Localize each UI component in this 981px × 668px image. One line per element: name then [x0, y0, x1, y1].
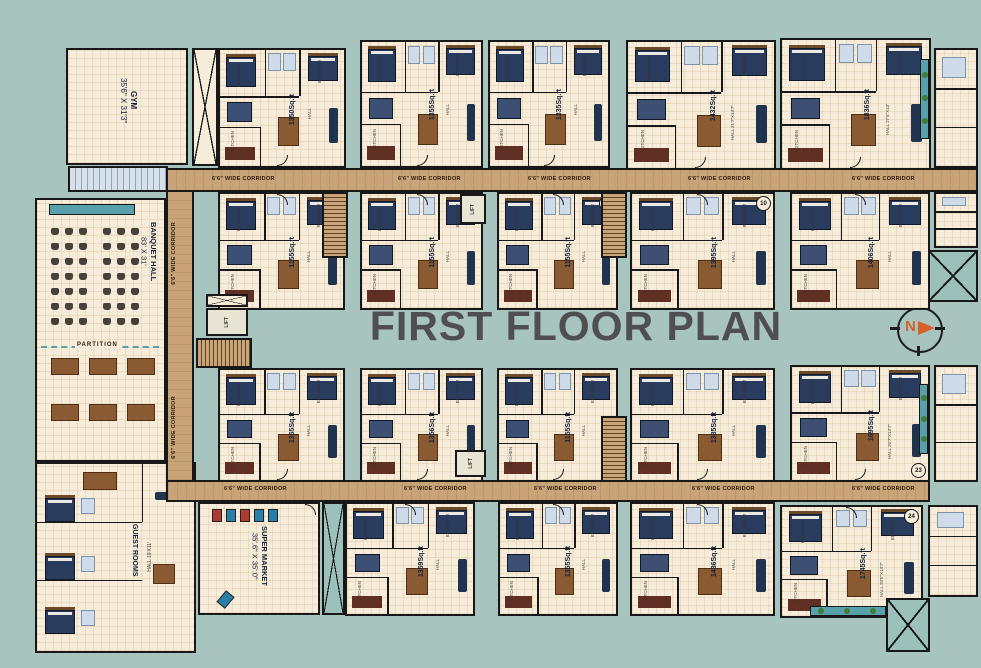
bed-headboard [639, 374, 673, 377]
corridor-label: 6'6" WIDE CORRIDOR [171, 222, 177, 285]
gym-name: GYM [129, 91, 138, 109]
bed-pillow [638, 52, 667, 55]
bed-headboard [446, 373, 475, 376]
toilet-icon [550, 46, 562, 65]
interior-wall [438, 194, 439, 240]
interior-wall [400, 443, 401, 480]
door-arc-icon [277, 155, 288, 166]
chair-icon [103, 228, 111, 235]
toilet-icon [844, 370, 858, 387]
room-label-bedroom: BEDROOM [897, 52, 902, 75]
plant-icon [870, 608, 876, 614]
bed-headboard [226, 54, 256, 57]
bed-headboard [505, 198, 533, 201]
bed-headboard [635, 47, 670, 50]
door-arc-icon [855, 469, 866, 480]
room-label-bedroom: BEDROOM [236, 64, 241, 87]
sofa-icon [756, 559, 766, 592]
sofa-icon [912, 251, 922, 285]
interior-wall [632, 443, 677, 444]
bed-pillow [229, 59, 253, 62]
chair-icon [65, 318, 73, 325]
door-arc-icon [855, 194, 866, 205]
guest-rooms-name: GUEST ROOMS [131, 524, 138, 577]
interior-wall [681, 42, 682, 92]
toilet-icon [283, 53, 296, 70]
chair-icon [51, 228, 59, 235]
room-label-kitchen: KITCHEN [508, 447, 513, 467]
room-label-kitchen: KITCHEN [643, 581, 648, 601]
interior-wall [264, 370, 265, 414]
interior-wall [528, 124, 529, 166]
bed-headboard [368, 198, 397, 201]
partition-label: PARTITION [75, 342, 120, 348]
room-label-bedroom: BEDROOM [650, 383, 655, 406]
room-label-bedroom: BEDROOM [742, 380, 747, 403]
bed-pillow [892, 375, 919, 378]
shaft-x-icon [192, 48, 218, 166]
interior-wall [220, 414, 299, 415]
room-label-bedroom: BEDROOM [810, 208, 815, 231]
room-label-bedroom: BEDROOM [590, 380, 595, 403]
toilet-icon [81, 498, 95, 514]
interior-wall [930, 565, 976, 566]
room-label-hall: HALL [731, 425, 736, 436]
supermarket: SUPER MARKET 35'.6" X 35'.0" [198, 502, 320, 615]
corridor-label: 6'6" WIDE CORRIDOR [534, 486, 597, 492]
room-label-hall: HALL [887, 251, 892, 262]
bed-pillow [48, 500, 72, 503]
room-label-kitchen: KITCHEN [793, 583, 798, 603]
banquet-hall: BANQUET HALL 83' X 31' PARTITION [35, 198, 166, 462]
dining-table-icon [89, 404, 117, 421]
toilet-icon [704, 373, 719, 390]
interior-wall [871, 507, 872, 551]
door-arc-icon [697, 504, 708, 515]
room-label-kitchen: KITCHEN [640, 130, 645, 150]
bed-icon [732, 376, 766, 400]
interior-wall [936, 211, 976, 212]
room-label-hall: HALL [306, 251, 311, 262]
bed-headboard [889, 197, 922, 200]
right-wing-strip [934, 365, 978, 482]
toilet-icon [544, 373, 556, 390]
bed-pillow [229, 203, 253, 206]
open-shaft-x-icon [322, 502, 345, 615]
bed-pillow [371, 203, 394, 206]
interior-wall [265, 50, 266, 96]
sofa-icon [756, 251, 766, 285]
cart-icon [240, 509, 250, 522]
unit-area-label: 1155Sq.ft [289, 237, 296, 268]
door-arc-icon [850, 157, 861, 168]
bed-headboard [582, 373, 610, 376]
floor-plan: FIRST FLOOR PLAN GYM 35'6" X 31'3" BANQU… [0, 0, 981, 668]
room-label-bedroom: BEDROOM [800, 520, 805, 543]
bed-headboard [368, 374, 397, 377]
bed-pillow [802, 376, 829, 379]
interior-wall [566, 42, 567, 92]
unit-number-badge: 24 [904, 509, 919, 524]
right-wing-strip [928, 505, 978, 597]
bed-pillow [642, 513, 670, 516]
chair-icon [117, 303, 125, 310]
interior-wall [259, 443, 260, 480]
cart-icon [268, 509, 278, 522]
gym-dims: 35'6" X 31'3" [119, 78, 128, 123]
bed-pillow [802, 203, 829, 206]
interior-wall [936, 88, 976, 89]
toilet-icon [937, 512, 965, 528]
chair-icon [65, 243, 73, 250]
room-label-bedroom: BEDROOM [236, 383, 241, 406]
room-label-bedroom: BEDROOM [455, 53, 460, 76]
room-label-kitchen: KITCHEN [230, 447, 235, 467]
unit-area-label: 1436Sq.ft [711, 546, 718, 577]
bed-pillow [310, 378, 334, 381]
cart-icon [254, 509, 264, 522]
chair-icon [65, 228, 73, 235]
interior-wall [792, 269, 836, 270]
chair-icon [131, 273, 139, 280]
cart-icon [226, 509, 236, 522]
room-label-hall: HALL [573, 104, 578, 115]
chair-icon [103, 258, 111, 265]
chair-icon [103, 318, 111, 325]
room-label-hall: HALL [581, 425, 586, 436]
dining-table-icon [51, 358, 79, 375]
interior-wall [632, 240, 722, 241]
bed-pillow [311, 58, 335, 61]
chair-icon [131, 243, 139, 250]
interior-wall [490, 92, 566, 93]
interior-wall [632, 269, 677, 270]
dining-table-icon [83, 472, 117, 490]
toilet-icon [861, 370, 875, 387]
sofa-icon [602, 559, 610, 592]
bed-headboard [307, 373, 337, 376]
room-label-hall: HALL 20'5"X13'7" [879, 562, 884, 597]
interior-wall [299, 370, 300, 414]
bed-icon [732, 48, 767, 76]
chair-icon [117, 318, 125, 325]
bed-icon [789, 514, 822, 542]
right-wing-strip [934, 48, 978, 168]
banquet-label: BANQUET HALL 83' X 31' [139, 222, 158, 281]
room-label-bedroom: BEDROOM [742, 53, 747, 76]
chair-icon [131, 228, 139, 235]
room-label-bedroom: BEDROOM [377, 57, 382, 80]
bed-icon [639, 201, 673, 231]
corridor-label: 6'6" WIDE CORRIDOR [398, 176, 461, 182]
unit-area-label: 1335Sq.ft [556, 89, 563, 120]
apartment-unit: 1406Sq.ftBEDROOMBEDROOMHALLKITCHEN [790, 192, 930, 310]
toilet-icon [81, 610, 95, 626]
bed-pillow [735, 50, 764, 53]
bed-headboard [799, 371, 832, 374]
room-label-kitchen: KITCHEN [357, 581, 362, 601]
bed-pillow [892, 202, 919, 205]
room-label-kitchen: KITCHEN [230, 274, 235, 294]
bed-pillow [508, 379, 530, 382]
interior-wall [299, 194, 300, 240]
room-label-kitchen: KITCHEN [230, 131, 235, 151]
sofa-icon [756, 425, 766, 458]
unit-number-badge: 10 [756, 196, 771, 211]
room-label-bedroom: BEDROOM [514, 208, 519, 231]
chair-icon [65, 273, 73, 280]
room-label-hall: HALL [445, 104, 450, 115]
room-label-kitchen: KITCHEN [372, 447, 377, 467]
bed-headboard [226, 198, 256, 201]
gym-room: GYM 35'6" X 31'3" [66, 48, 188, 165]
room-label-bedroom: BEDROOM [316, 380, 321, 403]
interior-wall [400, 269, 401, 308]
interior-wall [220, 127, 260, 128]
unit-area-label: 1355Sq.ft [565, 546, 572, 577]
interior-wall [574, 194, 575, 240]
interior-wall [930, 536, 976, 537]
chair-icon [117, 288, 125, 295]
room-label-hall: HALL 27'5"X13' [885, 104, 890, 135]
bed-icon [355, 554, 380, 573]
bed-icon [45, 498, 75, 522]
interior-wall [574, 370, 575, 414]
bed-headboard [789, 511, 822, 514]
bed-headboard [732, 373, 766, 376]
sofa-icon [756, 105, 766, 143]
room-label-bedroom: BEDROOM [455, 380, 460, 403]
interior-wall [936, 228, 976, 229]
bed-icon [227, 102, 252, 122]
bed-headboard [582, 507, 610, 510]
room-label-hall: HALL [445, 251, 450, 262]
interior-wall [400, 124, 401, 166]
room-label-bedroom: BEDROOM [514, 383, 519, 406]
balcony [810, 606, 886, 616]
bed-headboard [506, 508, 534, 511]
room-label-bedroom: BEDROOM [647, 57, 652, 80]
interior-wall [628, 92, 721, 93]
bed-icon [639, 511, 673, 540]
interior-wall [428, 504, 429, 548]
kitchen-counter-icon [634, 148, 669, 162]
bed-icon [506, 245, 529, 264]
apartment-unit: 1155Sq.ftBEDROOMBEDROOMHALLKITCHEN09 [497, 192, 618, 310]
staircase-icon [196, 338, 252, 368]
interior-wall [438, 42, 439, 92]
toilet-icon [81, 556, 95, 572]
interior-wall [722, 504, 723, 548]
apartment-unit: 1395Sq.ftBEDROOMBEDROOMHALLKITCHEN10 [630, 192, 775, 310]
room-label-bedroom: BEDROOM [236, 208, 241, 231]
interior-wall [541, 370, 542, 414]
bed-icon [640, 245, 668, 264]
lift-label: LIFT [470, 204, 476, 215]
apartment-unit: 1155Sq.ftBEDROOMBEDROOMHALLKITCHEN [497, 368, 618, 482]
interior-wall [683, 370, 684, 414]
bed-pillow [792, 50, 821, 53]
room-label-hall: HALL [581, 559, 586, 570]
apartment-unit: 1836Sq.ftBEDROOMBEDROOMHALL 27'5"X13'KIT… [780, 38, 931, 170]
dining-table-icon [127, 404, 155, 421]
shaft-x-icon [206, 294, 248, 307]
door-arc-icon [277, 469, 288, 480]
bed-icon [635, 50, 670, 83]
apartment-unit: 1385Sq.ftBEDROOMBEDROOMHALLKITCHEN [630, 368, 775, 482]
room-label-bedroom: BEDROOM [742, 204, 747, 227]
dining-table-icon [51, 404, 79, 421]
bed-icon [496, 49, 524, 81]
interior-wall [299, 50, 300, 96]
door-arc-icon [697, 469, 708, 480]
toilet-icon [686, 373, 701, 390]
interior-wall [782, 124, 829, 125]
room-label-bedroom: BEDROOM [515, 517, 520, 540]
unit-area-label: 1355Sq.ft [429, 89, 436, 120]
room-label-bedroom: BEDROOM [377, 208, 382, 231]
bed-icon [45, 610, 75, 634]
room-label-hall: HALL [731, 251, 736, 262]
unit-area-label: 1432Sq.ft [710, 90, 717, 121]
interior-wall [220, 443, 259, 444]
chair-icon [65, 258, 73, 265]
room-label-bedroom: BEDROOM [898, 204, 903, 227]
bed-icon [369, 420, 393, 439]
interior-wall [259, 269, 260, 308]
room-label-bedroom: BEDROOM [650, 517, 655, 540]
chair-icon [51, 288, 59, 295]
open-shaft-x-icon [928, 250, 978, 302]
toilet-icon [423, 373, 435, 390]
plant-icon [922, 95, 928, 101]
room-label-kitchen: KITCHEN [643, 274, 648, 294]
apartment-unit: 1335Sq.ftBEDROOMBEDROOMHALLKITCHEN [488, 40, 610, 168]
unit-area-label: 1385Sq.ft [711, 412, 718, 443]
chair-icon [65, 288, 73, 295]
chair-icon [79, 273, 87, 280]
unit-area-label: 1356Sq.ft [429, 412, 436, 443]
apartment-unit: 1359Sq.ftBEDROOMBEDROOMHALLKITCHEN [345, 502, 475, 616]
bed-headboard [732, 45, 767, 48]
stage-strip [49, 204, 135, 215]
room-label-kitchen: KITCHEN [803, 446, 808, 466]
interior-wall [347, 548, 428, 549]
room-label-kitchen: KITCHEN [372, 274, 377, 294]
chair-icon [79, 303, 87, 310]
sofa-icon [467, 104, 475, 141]
room-label-hall: HALL [445, 425, 450, 436]
bed-icon [45, 556, 75, 580]
apartment-unit: 1432Sq.ftBEDROOMBEDROOMHALL 21'7"X13'7"K… [626, 40, 776, 170]
interior-wall [836, 442, 837, 480]
bed-icon [800, 245, 827, 264]
dining-table-icon [153, 564, 175, 584]
chair-icon [79, 228, 87, 235]
bed-icon [368, 201, 397, 231]
chair-icon [79, 243, 87, 250]
interior-wall [362, 124, 400, 125]
dining-table-icon [89, 358, 117, 375]
interior-wall [677, 269, 678, 308]
interior-wall [841, 194, 842, 240]
interior-wall [782, 91, 876, 92]
chair-icon [51, 243, 59, 250]
interior-wall [405, 370, 406, 414]
interior-wall [835, 40, 836, 91]
chair-icon [65, 303, 73, 310]
bed-pillow [449, 378, 472, 381]
bed-icon [227, 245, 252, 264]
chair-icon [79, 288, 87, 295]
interior-wall [387, 577, 388, 614]
bed-headboard [732, 507, 766, 510]
bed-icon [574, 48, 602, 75]
interior-wall [632, 414, 722, 415]
lift-room: LIFT [460, 194, 486, 224]
bed-icon [799, 201, 832, 231]
interior-wall [792, 442, 836, 443]
door-arc-icon [277, 194, 288, 205]
chair-icon [117, 228, 125, 235]
room-label-bedroom: BEDROOM [742, 514, 747, 537]
interior-wall [392, 504, 393, 548]
sofa-icon [594, 104, 602, 141]
bed-icon [506, 420, 529, 439]
plant-icon [818, 608, 824, 614]
room-label-bedroom: BEDROOM [590, 204, 595, 227]
corridor-label: 6'6" WIDE CORRIDOR [528, 176, 591, 182]
chair-icon [131, 258, 139, 265]
bed-icon [226, 57, 256, 87]
bed-icon [640, 554, 668, 573]
interior-wall [37, 522, 142, 523]
room-label-kitchen: KITCHEN [372, 129, 377, 149]
room-label-bedroom: BEDROOM [445, 514, 450, 537]
room-label-bedroom: BEDROOM [317, 60, 322, 83]
door-arc-icon [695, 157, 706, 168]
unit-area-label: 1355Sq.ft [289, 412, 296, 443]
bed-pillow [48, 612, 72, 615]
bed-pillow [356, 513, 380, 516]
door-arc-icon [417, 194, 428, 205]
chair-icon [79, 318, 87, 325]
interior-wall [405, 42, 406, 92]
interior-wall [220, 269, 259, 270]
interior-wall [876, 40, 877, 91]
interior-wall [542, 504, 543, 548]
corridor-label: 6'6" WIDE CORRIDOR [212, 176, 275, 182]
interior-wall [220, 96, 299, 97]
interior-wall [500, 577, 537, 578]
sofa-icon [328, 425, 337, 458]
door-arc-icon [553, 504, 564, 515]
chair-icon [131, 318, 139, 325]
door-arc-icon [544, 155, 555, 166]
room-label-bedroom: BEDROOM [582, 53, 587, 76]
bed-headboard [226, 374, 256, 377]
bed-headboard [574, 45, 602, 48]
bed-icon [637, 99, 666, 120]
bed-icon [800, 418, 827, 437]
unit-area-label: 1745Sq.ft [860, 548, 867, 579]
staircase-icon [322, 192, 348, 258]
cart-icon [216, 590, 234, 609]
bed-headboard [639, 198, 673, 201]
interior-wall [675, 125, 676, 168]
bed-pillow [48, 558, 72, 561]
interior-wall [829, 124, 830, 168]
